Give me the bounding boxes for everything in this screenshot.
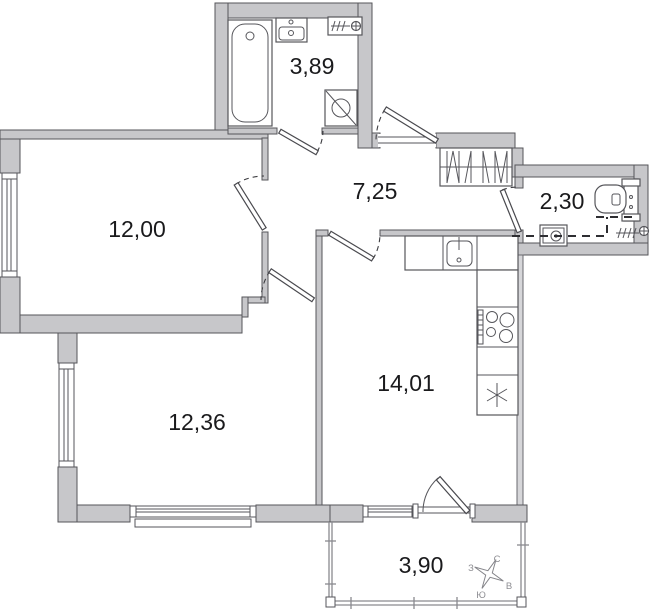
livingroom-door — [234, 176, 266, 230]
compass-rose-icon: С З В Ю — [468, 554, 512, 601]
wall-bedroom-step — [242, 297, 248, 317]
compass-west-label: З — [468, 563, 474, 574]
wall-bathroom-top — [215, 3, 372, 18]
wall-livingroom-bottom — [6, 315, 242, 333]
bedroom-area-label: 12,36 — [168, 409, 226, 435]
livingroom-area-label: 12,00 — [108, 216, 166, 242]
wardrobe-icon — [440, 148, 512, 186]
hallway-area-label: 7,25 — [353, 178, 398, 204]
floor-plan: С З В Ю 3,89 12,00 7,25 2,30 14,01 12,36… — [0, 0, 652, 615]
wc-dashed-boundary — [512, 217, 633, 236]
bathroom-area-label: 3,89 — [290, 53, 335, 79]
wall-livingroom-left-bottom — [0, 277, 20, 333]
wall-bedroom-left-bottom — [58, 467, 77, 522]
bedroom-door — [261, 269, 314, 302]
floor-plan-svg: С З В Ю 3,89 12,00 7,25 2,30 14,01 12,36… — [0, 0, 652, 615]
wc-area-label: 2,30 — [540, 188, 585, 214]
bathroom-door — [279, 129, 323, 154]
wall-entrance-right — [436, 133, 515, 148]
compass-east-label: В — [506, 581, 512, 592]
wall-bedroom-bottom-right — [256, 505, 330, 522]
wall-bathroom-left — [215, 3, 228, 130]
balcony-area-label: 3,90 — [399, 552, 444, 578]
washing-machine-icon — [325, 90, 357, 126]
window-bedroom-left — [59, 363, 74, 467]
window-bedroom-bottom — [130, 506, 256, 527]
towel-radiator-icon — [328, 17, 362, 35]
wall-kitchen-top-right — [380, 230, 523, 236]
wall-livingroom-right-top — [262, 138, 268, 180]
kitchen-area-label: 14,01 — [377, 370, 435, 396]
wall-bathroom-hall-right — [322, 128, 358, 134]
compass-north-label: С — [494, 554, 501, 565]
kitchen-door — [329, 231, 380, 261]
wall-wc-top — [515, 165, 648, 177]
window-livingroom — [2, 173, 17, 277]
wall-bathroom-hall-left — [228, 128, 277, 134]
wall-kitchen-left — [316, 236, 322, 505]
wall-kitchen-bottom-right — [472, 505, 527, 522]
wc-door — [500, 187, 521, 233]
wall-wc-bottom — [515, 243, 648, 255]
wall-livingroom-right-bottom — [262, 232, 268, 303]
wall-kitchen-top-left — [316, 230, 328, 236]
toilet-icon — [595, 179, 640, 221]
wall-wc-left-top — [515, 177, 523, 188]
exterior-walls — [0, 3, 648, 522]
window-kitchen — [363, 506, 417, 517]
sink-icon — [276, 18, 307, 42]
compass-south-label: Ю — [476, 590, 486, 601]
bathtub-icon — [228, 20, 272, 126]
